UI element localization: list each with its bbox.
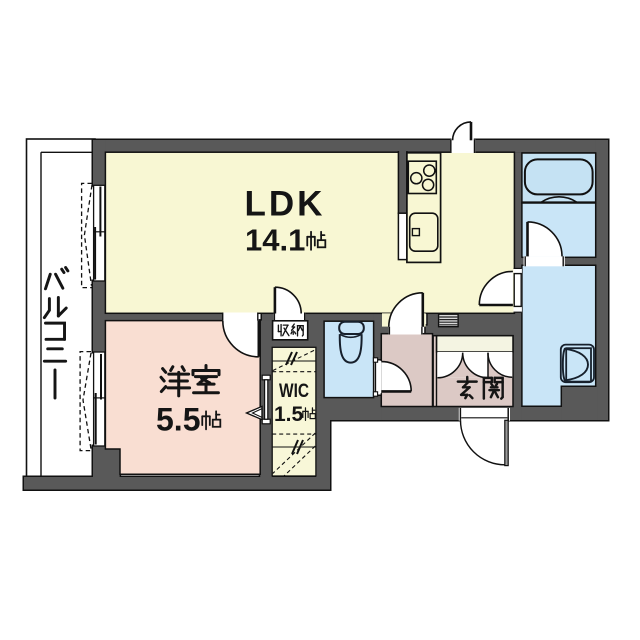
svg-text:14.1: 14.1 — [245, 223, 305, 258]
svg-text:LDK: LDK — [245, 185, 326, 224]
svg-text:5.5: 5.5 — [156, 402, 200, 438]
svg-text:1.5: 1.5 — [274, 403, 304, 426]
svg-text:WIC: WIC — [279, 380, 309, 402]
